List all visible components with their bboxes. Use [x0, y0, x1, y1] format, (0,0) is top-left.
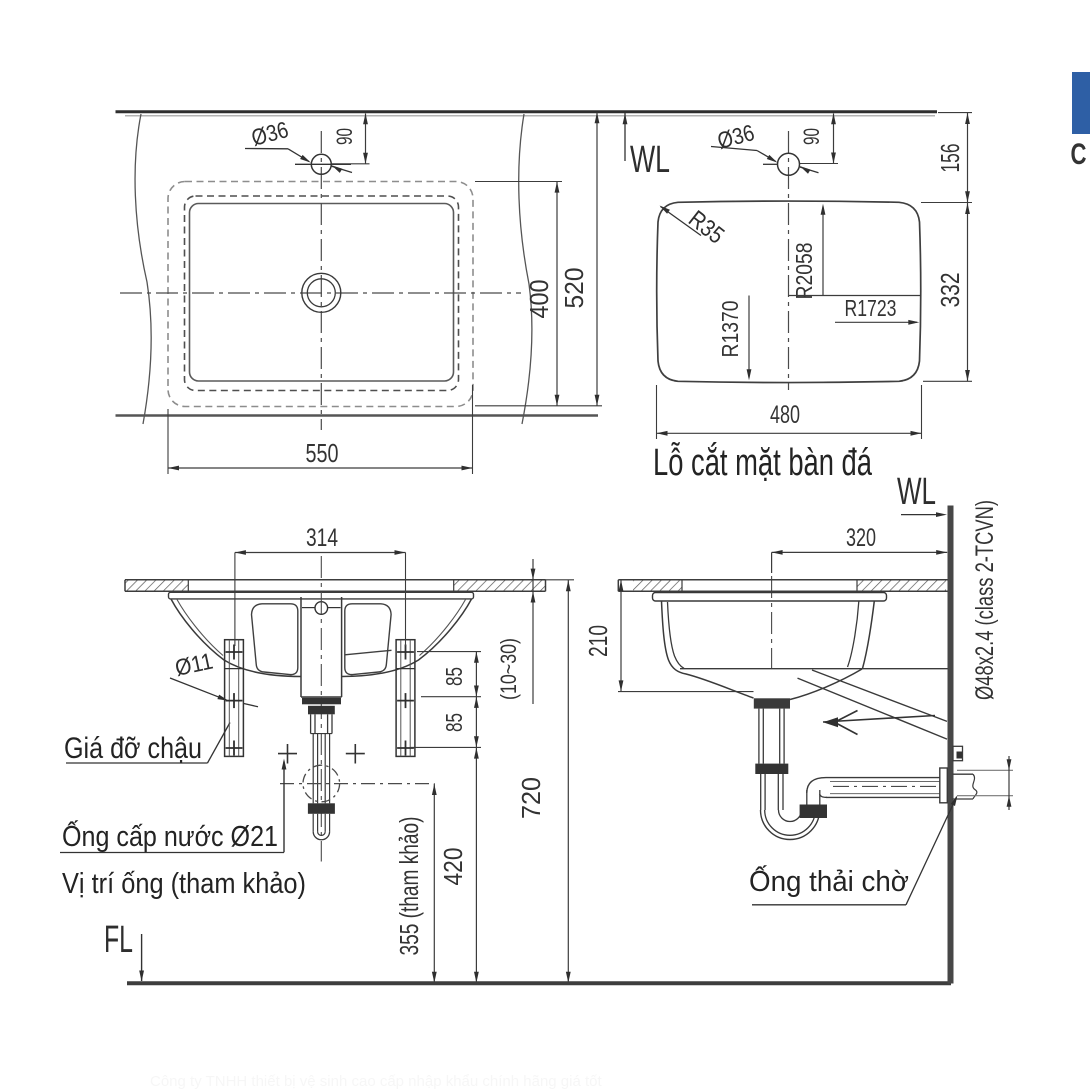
svg-text:C: C	[1071, 138, 1087, 171]
svg-text:Giá đỡ chậu: Giá đỡ chậu	[64, 732, 202, 765]
svg-text:355 (tham khảo): 355 (tham khảo)	[394, 817, 424, 956]
svg-text:85: 85	[441, 713, 467, 732]
svg-text:Ống cấp nước Ø21: Ống cấp nước Ø21	[62, 819, 278, 853]
svg-text:Ống thải chờ: Ống thải chờ	[749, 864, 909, 898]
svg-text:Vị trí ống (tham khảo): Vị trí ống (tham khảo)	[62, 868, 306, 900]
svg-text:(10~30): (10~30)	[496, 638, 521, 700]
svg-text:R2058: R2058	[791, 243, 817, 300]
svg-text:Ø48x2.4 (class 2-TCVN): Ø48x2.4 (class 2-TCVN)	[971, 500, 999, 700]
svg-text:420: 420	[438, 848, 468, 886]
svg-text:Công ty TNHH thiết bị vệ sinh: Công ty TNHH thiết bị vệ sinh cao cấp nh…	[150, 1073, 603, 1090]
svg-text:520: 520	[559, 268, 589, 309]
svg-text:550: 550	[306, 438, 339, 468]
svg-text:R1723: R1723	[845, 295, 897, 321]
svg-text:210: 210	[583, 625, 613, 657]
svg-text:FL: FL	[104, 919, 133, 961]
svg-text:400: 400	[524, 280, 554, 319]
svg-text:90: 90	[332, 128, 357, 145]
svg-text:Lỗ cắt mặt bàn đá: Lỗ cắt mặt bàn đá	[653, 441, 873, 484]
svg-text:WL: WL	[897, 471, 936, 513]
svg-text:314: 314	[306, 524, 338, 552]
svg-text:R1370: R1370	[717, 301, 743, 358]
svg-text:90: 90	[799, 128, 824, 145]
svg-text:156: 156	[935, 144, 965, 173]
svg-text:480: 480	[770, 401, 800, 429]
svg-text:720: 720	[516, 777, 546, 819]
svg-text:320: 320	[846, 524, 876, 552]
svg-text:85: 85	[441, 667, 467, 686]
svg-text:332: 332	[935, 273, 965, 308]
svg-text:WL: WL	[630, 139, 670, 181]
